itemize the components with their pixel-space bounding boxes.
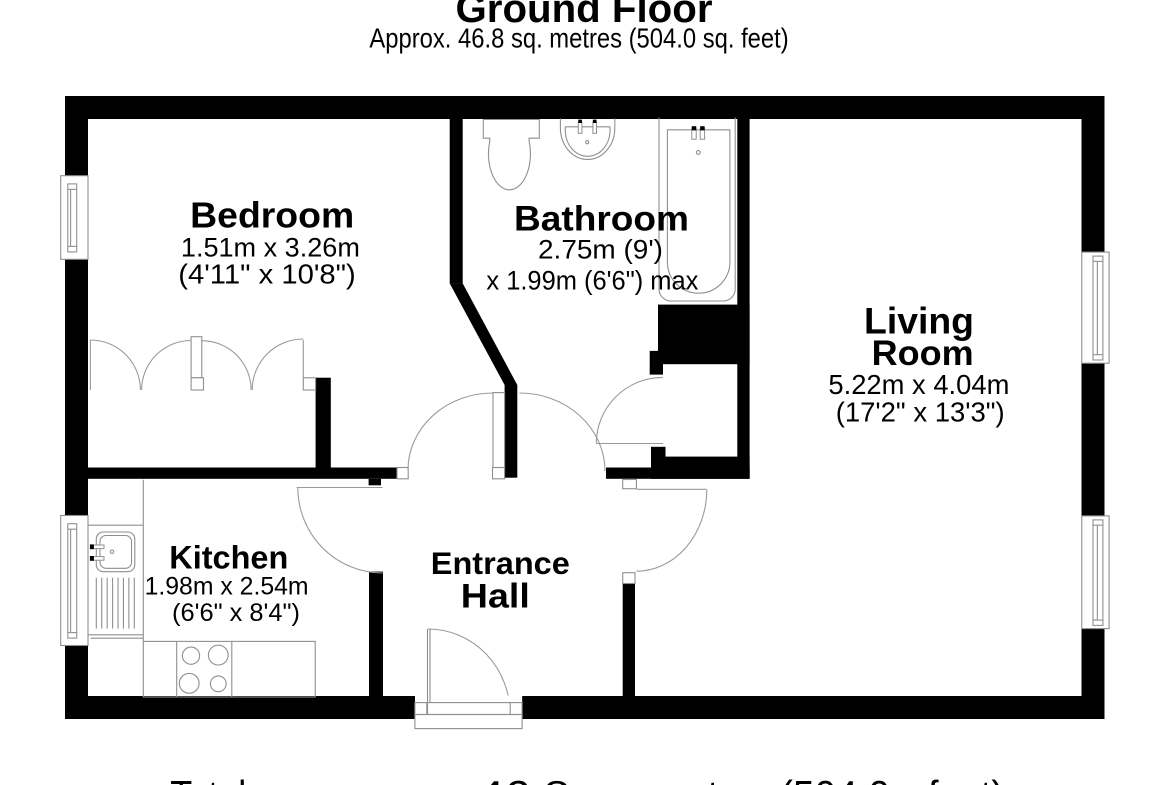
svg-text:Bathroom: Bathroom	[514, 200, 689, 239]
svg-text:(4'11" x 10'8"): (4'11" x 10'8")	[178, 259, 356, 290]
svg-text:Room: Room	[872, 333, 974, 373]
svg-text:Entrance: Entrance	[431, 545, 570, 581]
svg-text:2.75m (9'): 2.75m (9')	[538, 235, 663, 265]
svg-text:(17'2" x 13'3"): (17'2" x 13'3")	[836, 397, 1005, 428]
svg-text:Hall: Hall	[461, 578, 530, 616]
svg-text:x 1.99m (6'6") max: x 1.99m (6'6") max	[486, 265, 698, 295]
svg-text:Approx. 46.8 sq. metres (504.0: Approx. 46.8 sq. metres (504.0 sq. feet)	[369, 23, 788, 54]
svg-text:(6'6" x 8'4"): (6'6" x 8'4")	[172, 600, 300, 627]
svg-text:1.98m x 2.54m: 1.98m x 2.54m	[145, 574, 309, 601]
svg-text:Totalarea: approx.46.8sq.metre: Totalarea: approx.46.8sq.metres(504.0sq.…	[170, 774, 1004, 785]
svg-text:Kitchen: Kitchen	[169, 540, 288, 576]
svg-text:Bedroom: Bedroom	[190, 195, 354, 236]
